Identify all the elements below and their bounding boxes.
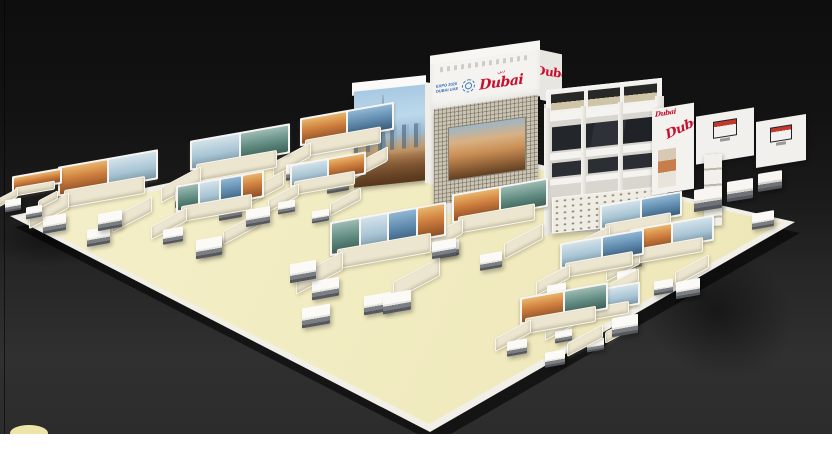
service-counter (727, 178, 753, 202)
wall-mounted-tv (713, 118, 737, 139)
expo-wordmark-line2: DUBAI UAE (436, 87, 458, 95)
led-screen (448, 116, 526, 181)
dubai-script-logo: Dubai (655, 107, 676, 119)
tv-stand (776, 141, 786, 146)
expo-2020-wordmark: EXPO 2020 DUBAI UAE (436, 82, 458, 94)
floor-sliver (10, 425, 48, 434)
dubai-script-logo: Dubai (479, 72, 523, 94)
tv-stand (720, 137, 730, 142)
service-counter (694, 186, 722, 212)
expo-2020-emblem-icon (462, 78, 475, 93)
roof-opening (624, 83, 657, 102)
exhibition-stand-render: EXPO 2020 DUBAI UAE دبي Dubai Dubai (0, 0, 832, 434)
roof-opening (588, 87, 621, 106)
dubai-logo-lockup: دبي Dubai (479, 67, 523, 95)
display-wall (756, 114, 806, 168)
dubai-script-logo: Dubai (540, 64, 562, 81)
tv-screen (771, 125, 791, 141)
render-canvas: EXPO 2020 DUBAI UAE دبي Dubai Dubai (0, 0, 832, 461)
brand-end-panel: Dubai Dubai (652, 103, 694, 196)
graphic-strip (658, 148, 676, 189)
wall-mounted-tv (770, 124, 792, 142)
service-counter (758, 170, 782, 192)
roof-opening (551, 91, 584, 110)
tv-screen (714, 119, 736, 137)
pergola-column (544, 108, 550, 236)
